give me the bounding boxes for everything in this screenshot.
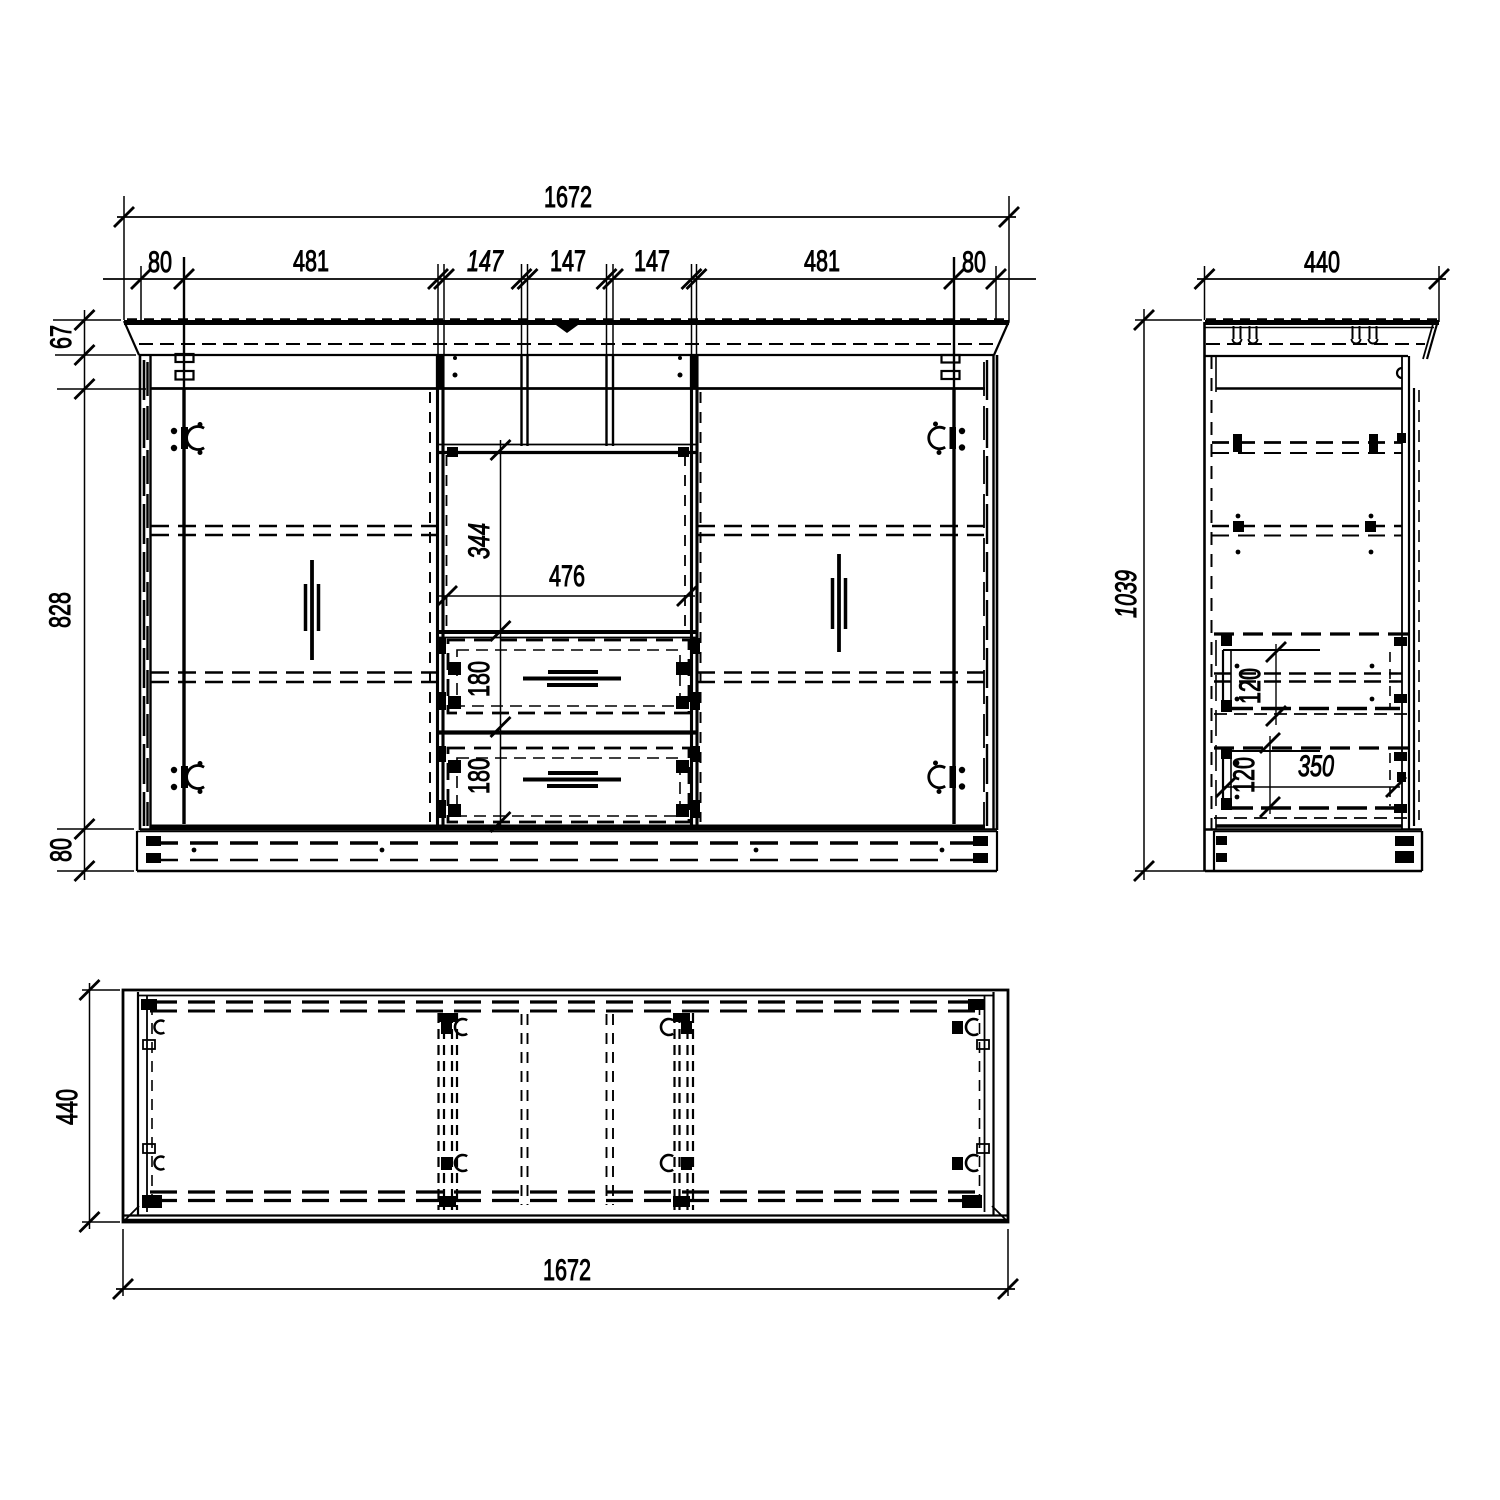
svg-text:1672: 1672 (544, 181, 592, 214)
svg-text:440: 440 (51, 1089, 84, 1125)
svg-text:481: 481 (804, 245, 840, 278)
svg-text:481: 481 (293, 245, 329, 278)
svg-text:1672: 1672 (543, 1254, 591, 1287)
svg-text:344: 344 (463, 523, 496, 559)
svg-text:80: 80 (45, 838, 78, 862)
svg-text:147: 147 (550, 245, 586, 278)
svg-text:147: 147 (634, 245, 670, 278)
svg-text:120: 120 (1234, 668, 1267, 704)
svg-text:350: 350 (1298, 750, 1334, 783)
svg-text:80: 80 (962, 246, 986, 279)
svg-text:180: 180 (463, 758, 496, 794)
svg-text:476: 476 (549, 560, 585, 593)
svg-text:80: 80 (148, 246, 172, 279)
svg-text:828: 828 (44, 592, 77, 628)
svg-text:440: 440 (1304, 246, 1340, 279)
svg-text:67: 67 (45, 325, 78, 349)
svg-text:147: 147 (467, 245, 504, 278)
svg-text:1039: 1039 (1110, 570, 1143, 618)
svg-text:180: 180 (463, 661, 496, 697)
